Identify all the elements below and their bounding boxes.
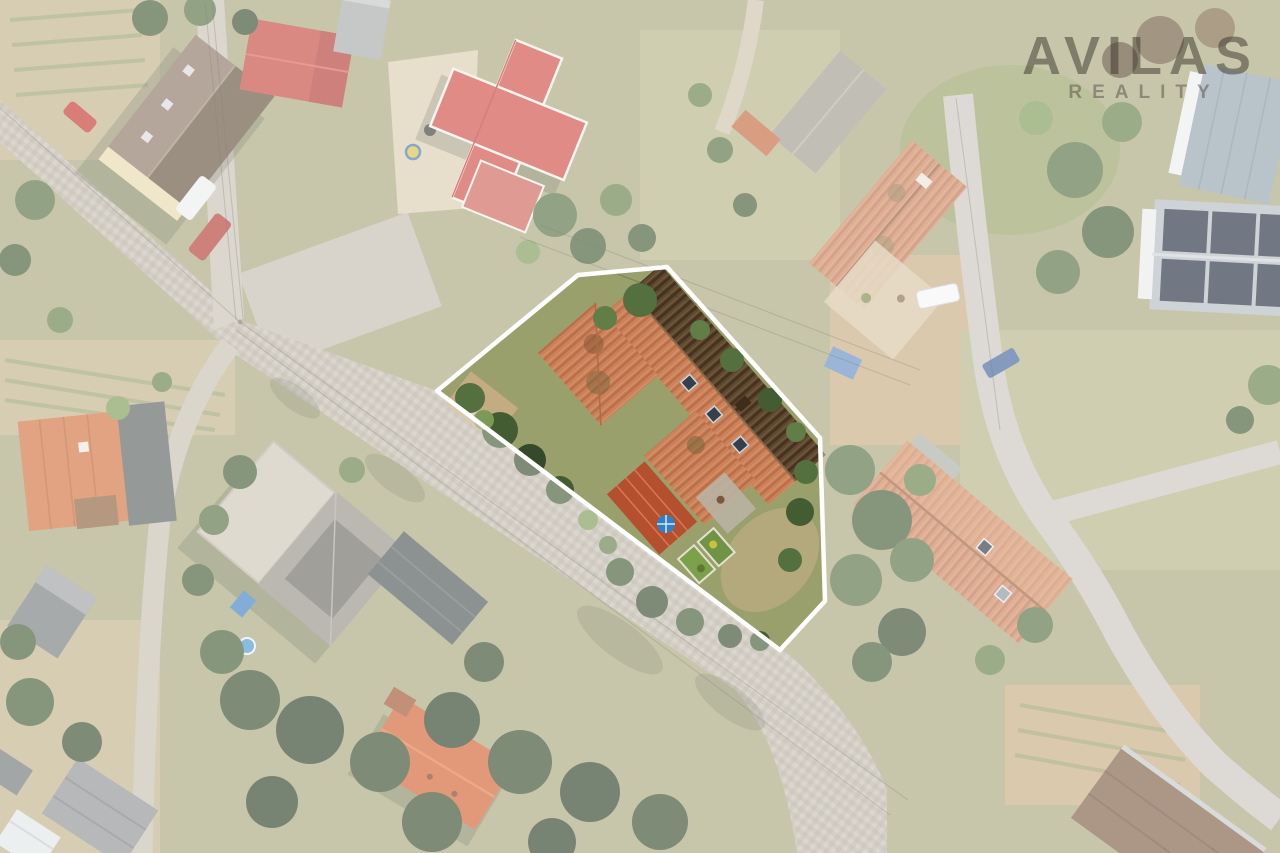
- watermark-subtitle: REALITY: [1068, 82, 1219, 103]
- watermark-brand: AVILAS: [1022, 26, 1258, 86]
- aerial-photo: AVILAS REALITY: [0, 0, 1280, 853]
- patio-umbrella-blue: [657, 515, 675, 533]
